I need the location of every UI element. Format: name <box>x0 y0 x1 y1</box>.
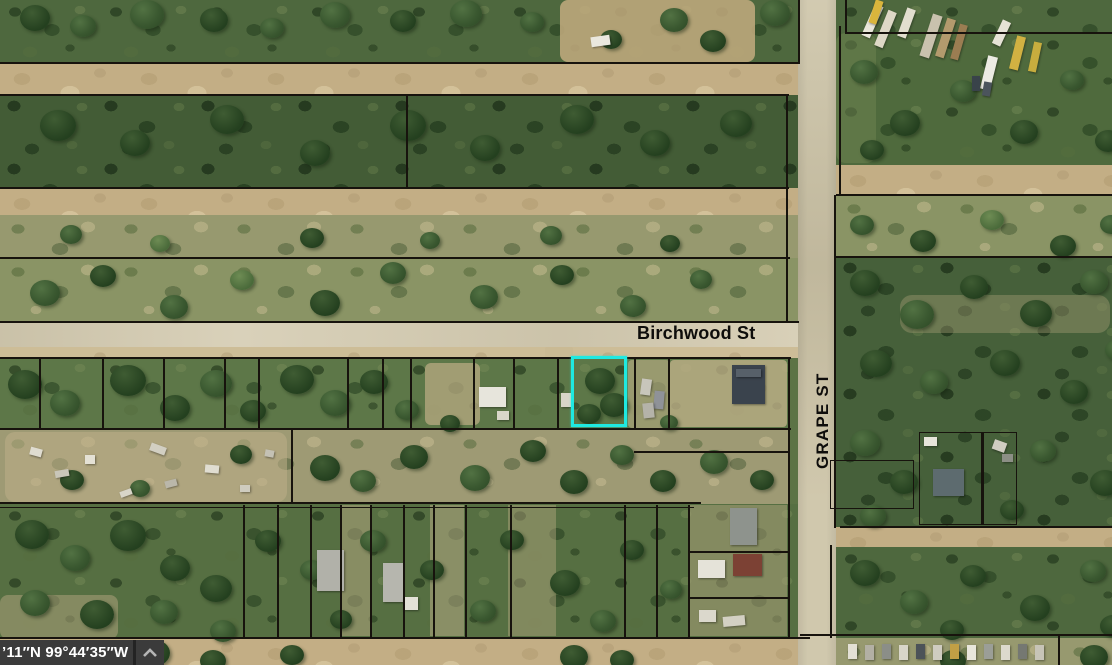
highlighted-parcel <box>571 356 627 427</box>
tree <box>50 390 80 416</box>
tree <box>450 0 482 27</box>
tree <box>70 15 96 37</box>
tree <box>15 520 49 549</box>
tree <box>660 235 680 252</box>
street-label-birchwood: Birchwood St <box>637 323 755 344</box>
vehicle <box>882 644 891 659</box>
tree <box>390 10 416 32</box>
tree <box>20 590 50 616</box>
tree <box>470 600 496 622</box>
tree <box>420 232 440 249</box>
parcel-line <box>340 505 342 638</box>
parcel-line <box>310 505 312 638</box>
tree <box>200 8 228 32</box>
dirt-road <box>0 188 812 215</box>
parcel-line <box>839 26 841 196</box>
house <box>479 387 506 407</box>
parcel-line <box>465 505 467 638</box>
parcel-line <box>0 187 789 189</box>
tree <box>30 280 60 306</box>
chevron-up-icon <box>142 648 158 658</box>
tree <box>420 560 444 580</box>
parcel-line <box>370 505 372 638</box>
terrain-patch <box>560 0 755 62</box>
house <box>383 563 403 602</box>
parcel-line <box>224 357 226 430</box>
tree <box>610 445 634 465</box>
parcel-line <box>557 357 559 430</box>
tree <box>620 295 646 317</box>
tree <box>130 480 150 497</box>
tree <box>320 390 350 416</box>
tree <box>860 350 892 377</box>
tree <box>560 105 594 134</box>
shed <box>723 615 746 627</box>
tree <box>940 620 964 640</box>
satellite-map[interactable]: Birchwood StGRAPE ST ’11″N 99°44′35″W <box>0 0 1112 665</box>
vehicle <box>967 645 976 660</box>
tree <box>390 110 426 141</box>
debris <box>85 455 95 464</box>
vehicle <box>1018 644 1027 659</box>
parcel-line <box>347 357 349 430</box>
vehicle <box>653 391 665 410</box>
tree <box>920 370 948 394</box>
parcel-line <box>410 357 412 430</box>
tree <box>590 610 616 632</box>
parcel-line <box>836 256 1112 258</box>
parcel-line <box>786 94 788 322</box>
tree <box>230 270 254 290</box>
terrain-patch <box>670 360 787 427</box>
debris <box>240 485 250 492</box>
debris <box>205 464 220 473</box>
tree <box>550 570 580 596</box>
vehicle <box>1001 645 1010 660</box>
parcel-line <box>277 505 279 638</box>
vehicle <box>642 402 655 418</box>
tree <box>200 575 232 602</box>
tree <box>1060 70 1084 90</box>
tree <box>910 230 936 252</box>
brush-strip <box>836 547 1112 638</box>
tree <box>850 270 880 296</box>
tree <box>540 226 562 245</box>
parcel-line <box>0 257 790 259</box>
tree <box>850 430 880 456</box>
terrain-patch <box>508 505 556 636</box>
dirt-road <box>836 165 1112 195</box>
dirt-road <box>0 63 812 95</box>
tree <box>240 400 266 422</box>
parcel-line <box>0 357 791 359</box>
parcel-line <box>0 502 701 504</box>
tree <box>850 560 880 586</box>
tree <box>1080 270 1108 294</box>
tree <box>860 140 884 160</box>
tree <box>380 262 406 284</box>
vehicle <box>933 645 942 660</box>
tree <box>160 295 188 319</box>
tree <box>310 455 340 481</box>
parcel-line <box>382 357 384 430</box>
parcel-line <box>0 428 791 430</box>
tree <box>200 370 232 397</box>
parcel-line <box>473 357 475 430</box>
house <box>730 508 757 545</box>
collapse-bar-button[interactable] <box>136 640 164 665</box>
tree <box>650 470 676 492</box>
tree <box>960 275 988 299</box>
parcel-line <box>163 357 165 430</box>
tree <box>1020 595 1050 621</box>
tree <box>460 465 490 491</box>
parcel-line <box>840 526 1112 528</box>
parcel-line <box>798 0 800 63</box>
tree <box>20 5 50 31</box>
grass-strip <box>0 215 798 258</box>
tree <box>150 235 170 252</box>
vehicle <box>1035 645 1044 660</box>
tree <box>200 650 226 665</box>
parcel-line <box>258 357 260 430</box>
tree <box>1030 440 1056 462</box>
tree <box>160 395 190 421</box>
parcel-line <box>634 451 789 453</box>
parcel-line <box>39 357 41 430</box>
tree <box>120 130 150 156</box>
tree <box>1050 235 1076 257</box>
tree <box>60 545 90 571</box>
house <box>698 560 725 578</box>
tree <box>400 445 428 469</box>
tree <box>1010 120 1038 144</box>
tree <box>520 440 546 462</box>
tree <box>1020 300 1052 327</box>
vehicle <box>899 645 908 660</box>
tree <box>990 350 1020 376</box>
parcel-line <box>845 32 1112 34</box>
street-label-grape: GRAPE ST <box>813 367 833 469</box>
parcel-line <box>688 505 690 638</box>
tree <box>310 290 340 316</box>
tree <box>1080 560 1106 582</box>
tree <box>280 365 314 394</box>
parcel-line <box>624 505 626 638</box>
tree <box>90 265 116 287</box>
tree <box>660 8 688 32</box>
tree <box>300 140 330 166</box>
tree <box>150 600 178 624</box>
tree <box>80 600 114 629</box>
tree <box>360 530 386 552</box>
parcel-line <box>668 357 670 430</box>
parcel-line <box>788 357 790 638</box>
tree <box>300 228 324 248</box>
tree <box>960 565 986 587</box>
tree <box>560 645 588 665</box>
parcel-line <box>830 545 832 638</box>
parcel-line <box>510 505 512 638</box>
tree <box>130 0 164 29</box>
parcel-line <box>403 505 405 638</box>
tree <box>470 135 500 161</box>
tree <box>720 110 752 137</box>
dirt-road <box>836 527 1112 547</box>
parcel-line <box>688 551 789 553</box>
debris <box>264 449 274 457</box>
tree <box>280 645 304 665</box>
vehicle <box>916 644 925 659</box>
coordinates-text: ’11″N 99°44′35″W <box>0 640 133 665</box>
tree <box>1060 380 1088 404</box>
tree <box>750 470 774 490</box>
tree <box>890 110 920 136</box>
tree <box>260 18 284 38</box>
tree <box>850 60 878 84</box>
tree <box>8 370 42 399</box>
tree <box>700 30 726 52</box>
tree <box>1080 645 1108 665</box>
tree <box>500 530 524 550</box>
shed <box>403 597 418 610</box>
tree <box>40 110 76 141</box>
parcel-line <box>291 428 293 504</box>
tree <box>60 225 82 244</box>
tree <box>1090 470 1112 496</box>
vehicle <box>972 76 980 91</box>
tree <box>470 285 498 309</box>
parcel-line <box>845 0 847 33</box>
parcel-line <box>688 597 789 599</box>
vehicle <box>848 644 857 659</box>
tree <box>660 580 682 599</box>
tree <box>700 450 728 474</box>
parcel-line <box>656 505 658 638</box>
parcel-line <box>433 505 435 638</box>
parcel-line <box>836 194 1112 196</box>
tree <box>550 265 574 285</box>
tree <box>610 650 634 665</box>
parcel-outline <box>830 460 914 509</box>
vehicle <box>865 645 874 660</box>
tree <box>520 12 544 32</box>
tree <box>640 130 670 156</box>
parcel-line <box>0 507 694 508</box>
house <box>733 554 762 576</box>
tree <box>395 400 419 420</box>
tree <box>690 270 712 289</box>
coordinates-bar: ’11″N 99°44′35″W <box>0 640 164 665</box>
parcel-line <box>0 94 789 96</box>
tree <box>320 2 350 28</box>
tree <box>980 210 1004 230</box>
vehicle <box>561 393 571 407</box>
parcel-line <box>102 357 104 430</box>
tree <box>760 0 790 26</box>
shed <box>497 411 509 420</box>
parcel-line <box>1058 634 1060 665</box>
vehicle <box>950 644 959 659</box>
parcel-line <box>406 95 408 188</box>
tree <box>850 215 874 235</box>
tree <box>110 365 146 396</box>
shed <box>699 610 716 622</box>
tree <box>900 300 934 329</box>
tree <box>350 470 376 492</box>
tree <box>230 445 252 464</box>
vehicle <box>984 644 993 659</box>
parcel-line <box>513 357 515 430</box>
parcel-line <box>981 432 984 525</box>
parcel-line <box>634 357 636 430</box>
building-roof <box>736 369 761 377</box>
tree <box>360 370 388 394</box>
parcel-line <box>800 634 1112 636</box>
tree <box>210 105 244 134</box>
tree <box>160 555 190 581</box>
tree <box>900 590 928 614</box>
parcel-line <box>243 505 245 638</box>
parcel-outline <box>919 432 1017 525</box>
tree <box>560 470 588 494</box>
tree <box>110 520 146 551</box>
parcel-line <box>0 62 800 64</box>
